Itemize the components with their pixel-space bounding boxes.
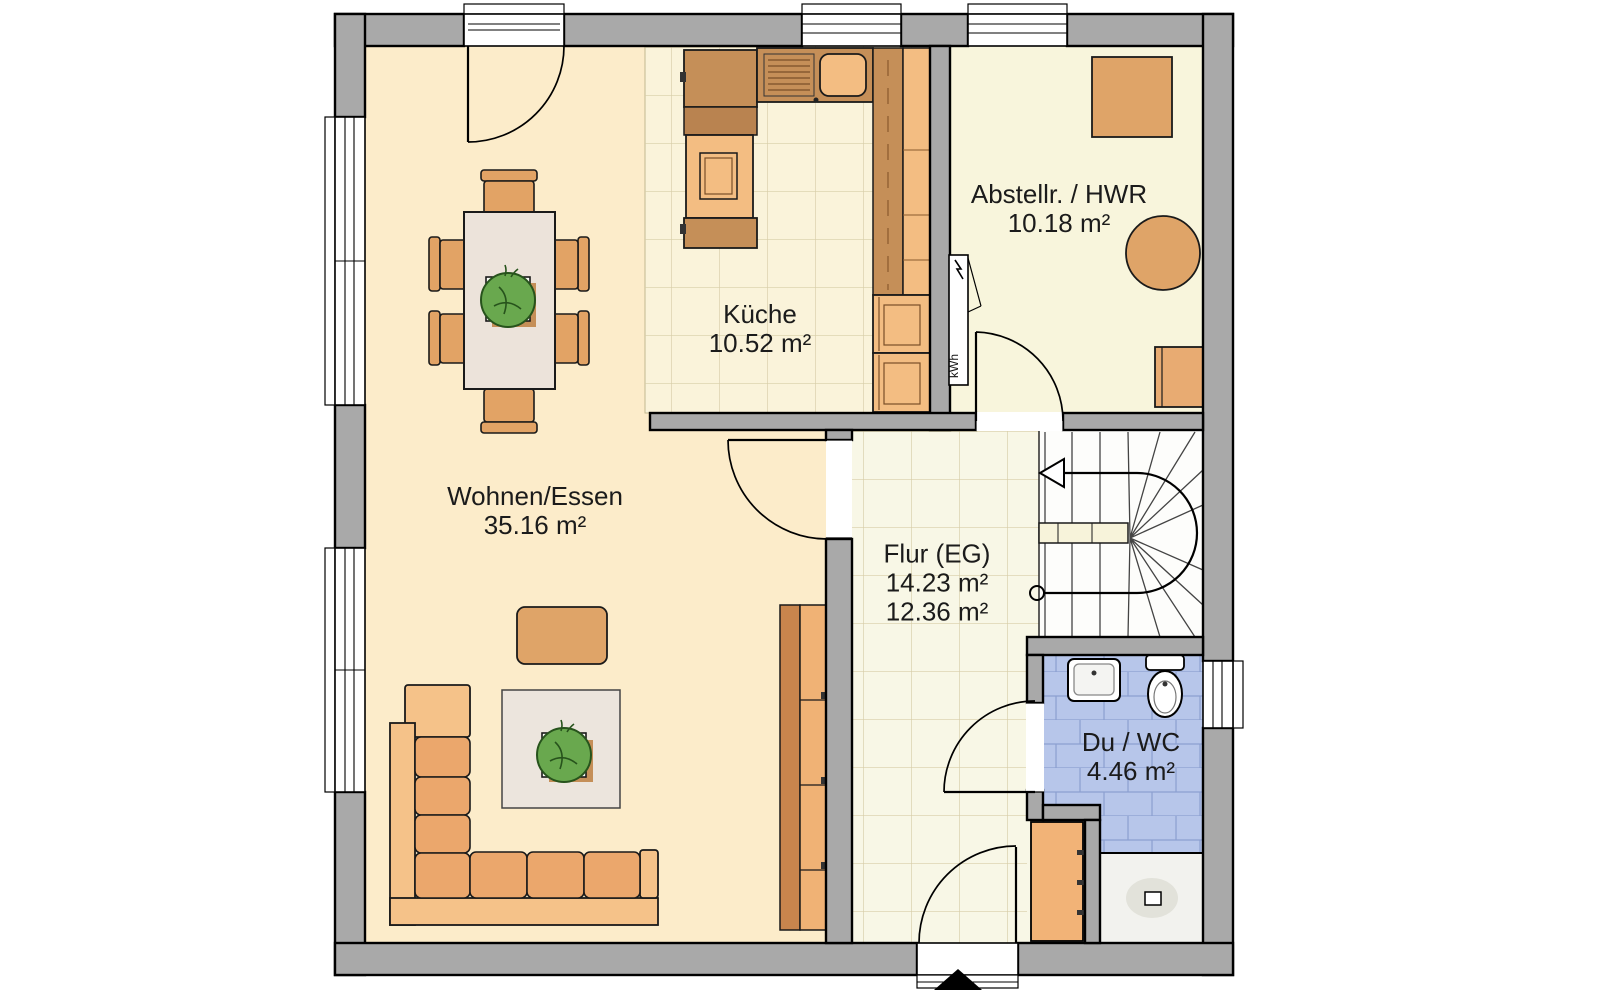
- wall-kitchen-hall: [650, 413, 976, 430]
- kitchen-window: [802, 4, 901, 46]
- kitchen-appliances: [873, 295, 930, 412]
- room-label-abstellraum: Abstellr. / HWR 10.18 m²: [971, 180, 1147, 238]
- kitchen-island: [680, 50, 757, 248]
- stair-landing: [1039, 523, 1128, 543]
- room-area: 10.18 m²: [971, 209, 1147, 238]
- room-name: Du / WC: [1082, 728, 1180, 757]
- room-label-flur: Flur (EG) 14.23 m² 12.36 m²: [884, 540, 991, 627]
- room-label-kueche: Küche 10.52 m²: [709, 300, 812, 358]
- room-name: Wohnen/Essen: [447, 482, 623, 511]
- staircase: [1030, 430, 1203, 637]
- shower-drain: [1145, 892, 1161, 905]
- floorplan-page: kWh Wohnen/Essen 35.16 m² Küche 10.52 m²…: [0, 0, 1600, 1000]
- wall-living-hall: [826, 539, 852, 943]
- tv-sideboard: [517, 607, 607, 664]
- coffee-table-plant: [502, 690, 620, 808]
- bath-sink: [1068, 659, 1120, 701]
- room-area: 4.46 m²: [1082, 757, 1180, 786]
- room-area: 10.52 m²: [709, 329, 812, 358]
- room-area: 14.23 m²: [884, 569, 991, 598]
- room-label-wohnen: Wohnen/Essen 35.16 m²: [447, 482, 623, 540]
- room-area: 35.16 m²: [447, 511, 623, 540]
- kitchen-counter-right: [873, 48, 930, 412]
- shower: [1100, 853, 1203, 943]
- kitchen-counter-top: [757, 48, 873, 103]
- room-name: Küche: [709, 300, 812, 329]
- wall-shelf: [780, 605, 827, 930]
- room-label-duwc: Du / WC 4.46 m²: [1082, 728, 1180, 786]
- meter-label: kWh: [947, 354, 961, 378]
- room-name: Abstellr. / HWR: [971, 180, 1147, 209]
- room-area-2: 12.36 m²: [884, 598, 991, 627]
- living-window-upper: [325, 117, 365, 405]
- floorplan-drawing: kWh: [0, 0, 1600, 1000]
- wall-stairs-bath: [1027, 637, 1203, 655]
- bath-window: [1203, 661, 1243, 728]
- storage-table: [1092, 57, 1172, 137]
- toilet: [1146, 655, 1184, 717]
- hall-wardrobe: [1031, 822, 1084, 941]
- living-window-lower: [325, 548, 365, 792]
- room-name: Flur (EG): [884, 540, 991, 569]
- storage-window: [968, 4, 1067, 46]
